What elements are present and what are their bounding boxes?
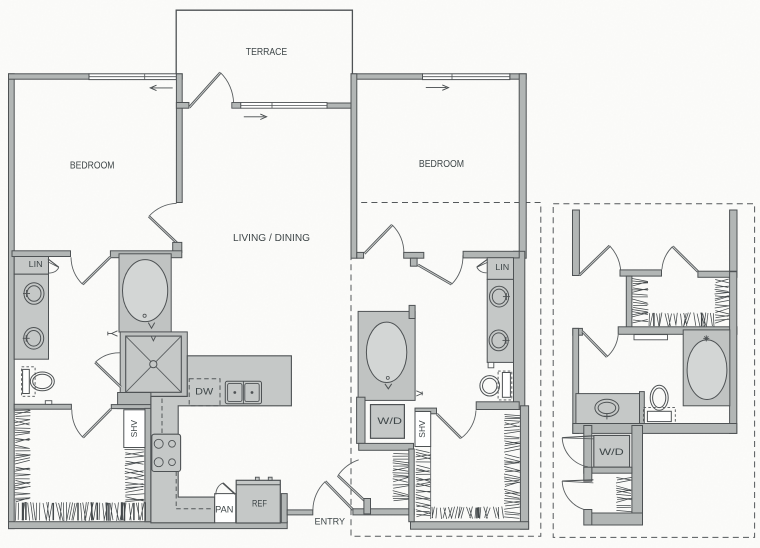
- svg-text:BEDROOM: BEDROOM: [70, 161, 115, 172]
- svg-text:LIN: LIN: [29, 259, 43, 269]
- svg-text:LIN: LIN: [495, 262, 509, 272]
- svg-text:PAN: PAN: [215, 504, 233, 514]
- svg-text:W/D: W/D: [599, 447, 624, 458]
- svg-text:W/D: W/D: [377, 416, 402, 427]
- svg-text:REF: REF: [252, 498, 267, 508]
- svg-text:ENTRY: ENTRY: [315, 517, 346, 527]
- svg-text:TERRACE: TERRACE: [246, 47, 287, 58]
- svg-text:LIVING / DINING: LIVING / DINING: [233, 233, 310, 244]
- svg-text:DW: DW: [195, 387, 214, 397]
- svg-text:SHV: SHV: [130, 419, 139, 437]
- svg-text:BEDROOM: BEDROOM: [419, 159, 464, 170]
- svg-text:SHV: SHV: [418, 420, 427, 438]
